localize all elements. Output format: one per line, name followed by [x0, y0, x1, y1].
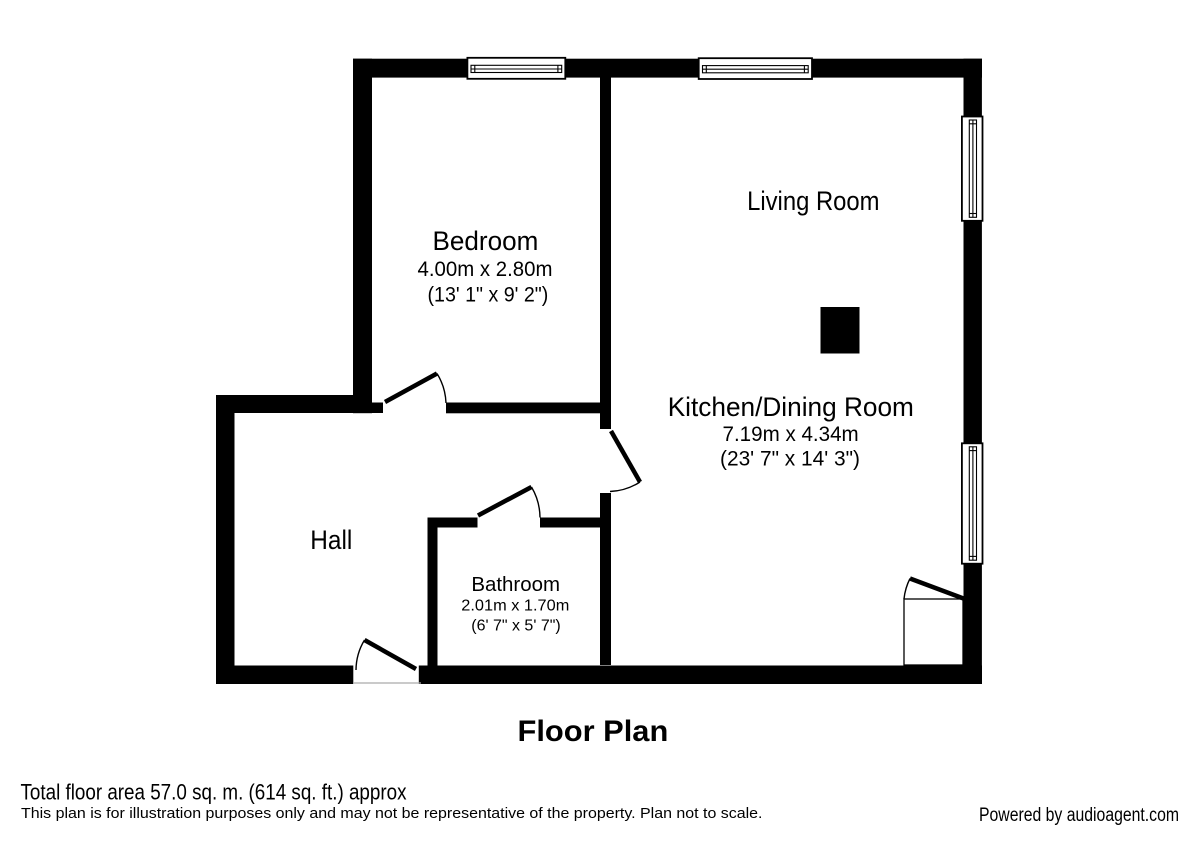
svg-text:Total floor area 57.0 sq. m. (: Total floor area 57.0 sq. m. (614 sq. ft…: [21, 779, 407, 804]
svg-text:Floor Plan: Floor Plan: [518, 715, 669, 748]
svg-text:Bathroom: Bathroom: [471, 574, 560, 596]
svg-text:4.00m x 2.80m: 4.00m x 2.80m: [418, 258, 553, 281]
svg-text:2.01m x 1.70m: 2.01m x 1.70m: [461, 597, 569, 614]
svg-text:Kitchen/Dining Room: Kitchen/Dining Room: [668, 392, 914, 422]
svg-text:(6' 7" x 5' 7"): (6' 7" x 5' 7"): [471, 617, 560, 634]
svg-text:Hall: Hall: [310, 525, 352, 555]
svg-text:Bedroom: Bedroom: [433, 226, 539, 256]
svg-text:Powered by audioagent.com: Powered by audioagent.com: [979, 805, 1179, 826]
svg-text:This plan is for illustration: This plan is for illustration purposes o…: [21, 805, 763, 822]
svg-text:(23' 7" x 14' 3"): (23' 7" x 14' 3"): [720, 447, 860, 470]
svg-text:7.19m x 4.34m: 7.19m x 4.34m: [723, 423, 859, 446]
svg-text:(13' 1" x 9' 2"): (13' 1" x 9' 2"): [428, 284, 549, 307]
svg-text:Living Room: Living Room: [747, 186, 879, 216]
